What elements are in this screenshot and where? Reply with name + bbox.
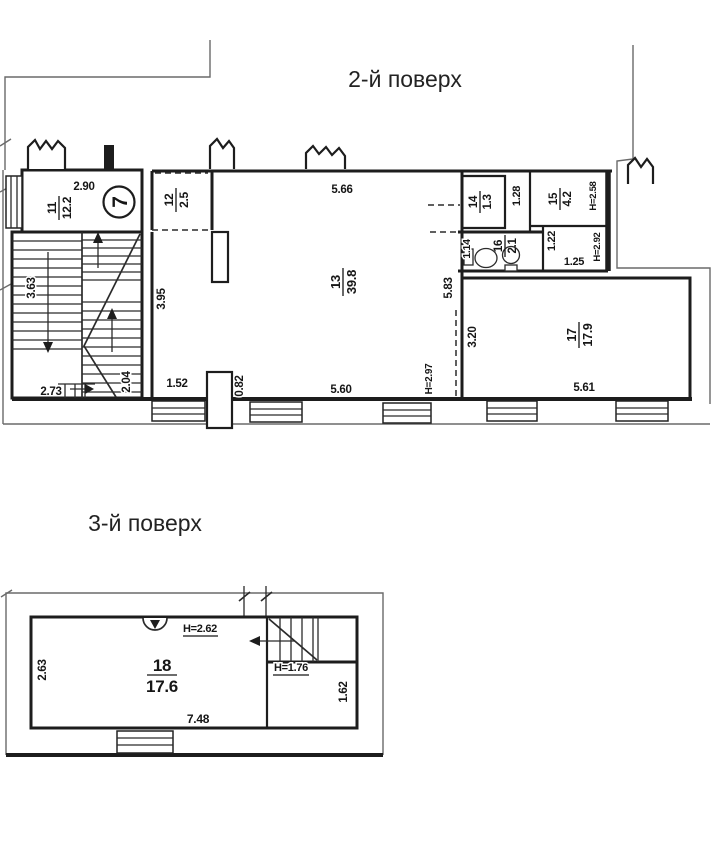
room11-label: 11 12.2	[45, 196, 74, 220]
dim-label: 0.82	[234, 375, 246, 396]
dim-label: H=2.62	[183, 623, 217, 635]
wall-tick	[104, 145, 114, 169]
room-area: 4.2	[562, 191, 574, 206]
stair-number: 7	[109, 196, 132, 207]
window	[383, 403, 431, 423]
dim-label: 3.20	[467, 326, 479, 347]
shaft-lines	[244, 586, 266, 616]
floorplan-canvas: 2-й поверх	[0, 0, 720, 865]
arrow-left-icon	[249, 636, 260, 646]
room-number: 16	[493, 240, 505, 252]
dashed-lines	[152, 173, 460, 396]
room-number: 12	[162, 193, 176, 206]
pilaster	[207, 372, 232, 428]
room17-label: 17 17.9	[565, 322, 595, 348]
room18-label: 18 17.6	[146, 656, 178, 696]
dim-label: 5.60	[330, 384, 351, 396]
dim-label: 2.04	[121, 371, 133, 393]
dim-label: 2.63	[37, 659, 49, 680]
floor2-plan: 2-й поверх	[0, 40, 710, 428]
window	[487, 401, 537, 421]
dim-label: 1.14	[461, 239, 473, 259]
arc-symbol	[143, 618, 167, 630]
dim-label: 2.73	[40, 386, 61, 398]
chimney-icon	[210, 139, 234, 169]
dim-label: 5.66	[331, 184, 352, 196]
arrow-down-icon	[43, 342, 53, 353]
window	[6, 176, 22, 228]
room-area: 1.3	[482, 194, 494, 209]
dim-label: 3.95	[156, 288, 168, 310]
room-area: 12.2	[60, 196, 74, 219]
chimney-symbols	[28, 139, 653, 184]
stair-treads	[280, 617, 313, 662]
pilaster	[212, 232, 228, 282]
arrow-up-icon	[93, 232, 103, 243]
room-area: 2.1	[507, 238, 519, 254]
room-area: 2.5	[177, 191, 191, 207]
room-number: 18	[153, 656, 171, 675]
room-number: 17	[565, 328, 579, 342]
chimney-icon	[306, 146, 345, 169]
floorplan-page: 2-й поверх	[0, 0, 720, 865]
floor2-title: 2-й поверх	[348, 66, 462, 92]
room13-label: 13 39.8	[328, 268, 359, 296]
window	[152, 401, 205, 421]
dim-label: 7.48	[187, 712, 210, 726]
dim-label: 2.90	[73, 181, 94, 193]
window	[117, 731, 173, 753]
dim-label: 1.62	[338, 681, 350, 702]
room-number: 11	[45, 201, 59, 214]
window	[250, 402, 302, 422]
room-area: 17.9	[581, 323, 595, 346]
stair-number-label: 7	[109, 196, 132, 207]
dim-label: 5.83	[443, 277, 455, 298]
dim-label: 1.22	[546, 231, 558, 251]
chimney-icon	[28, 140, 65, 169]
chimney-icon	[628, 158, 653, 184]
room-area: 39.8	[344, 270, 359, 294]
room14-label: 14 1.3	[468, 191, 494, 213]
arrow-up-icon	[107, 308, 117, 319]
dim-label: 3.63	[26, 277, 38, 298]
room12-label: 12 2.5	[162, 188, 191, 212]
room-area: 17.6	[146, 677, 178, 696]
dim-label: 1.25	[564, 256, 584, 268]
room15-label: 15 4.2	[548, 188, 574, 210]
dim-label: H=2.58	[588, 181, 599, 210]
dim-label: 5.61	[573, 382, 595, 394]
dim-label: H=1.76	[274, 662, 308, 674]
floor3-plan: 3-й поверх H=2.62 H=1.76	[1, 510, 383, 755]
room-number: 14	[468, 195, 480, 208]
dim-label: 1.52	[166, 378, 187, 390]
room-number: 15	[548, 192, 560, 205]
stair-break-line	[269, 619, 317, 660]
dim-label: H=2.97	[424, 363, 435, 394]
room-number: 13	[328, 275, 343, 289]
staircase	[249, 617, 318, 662]
sink-pedestal-icon	[505, 265, 517, 271]
dim-label: H=2.92	[592, 232, 603, 261]
floor3-title: 3-й поверх	[88, 510, 202, 536]
window	[616, 401, 668, 421]
dim-label: 1.28	[511, 186, 523, 206]
